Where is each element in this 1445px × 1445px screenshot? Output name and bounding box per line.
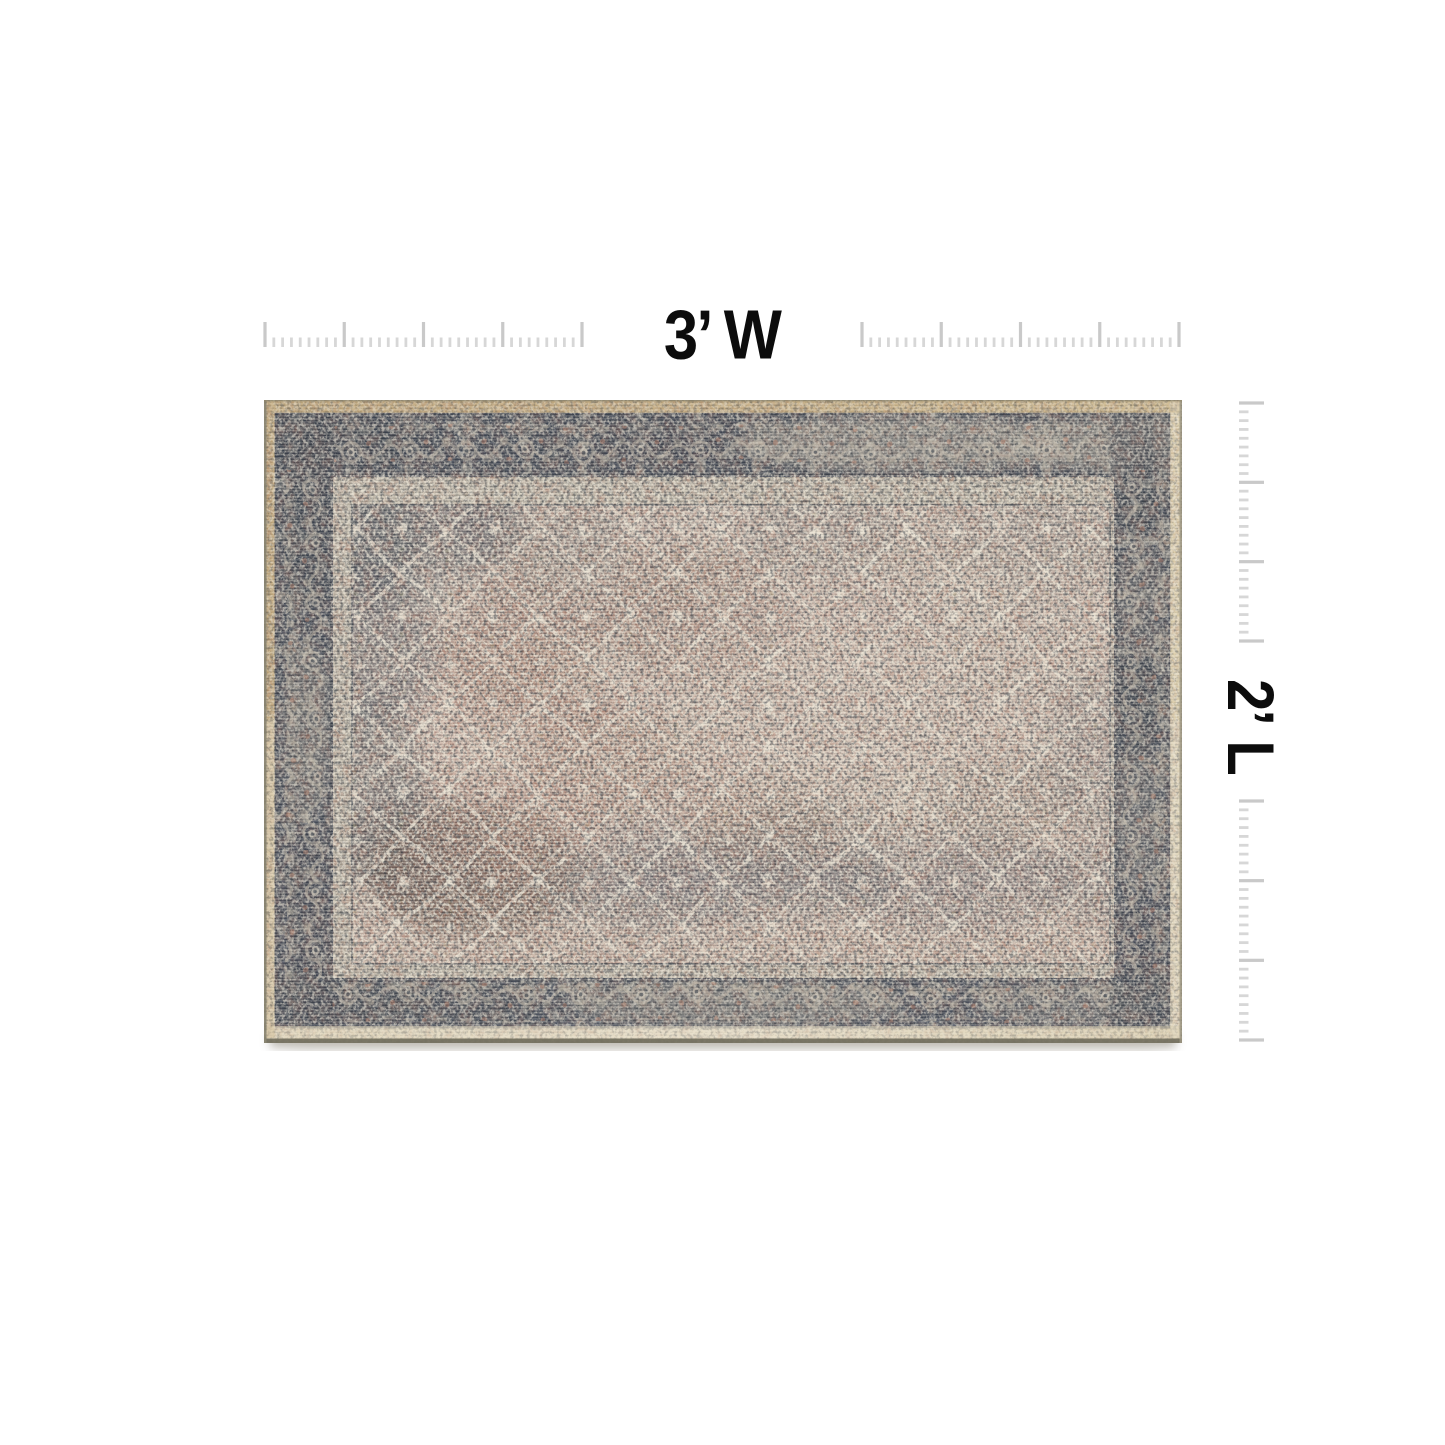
svg-text:2’ L: 2’ L [1213,679,1286,775]
svg-text:3’ W: 3’ W [664,295,783,374]
